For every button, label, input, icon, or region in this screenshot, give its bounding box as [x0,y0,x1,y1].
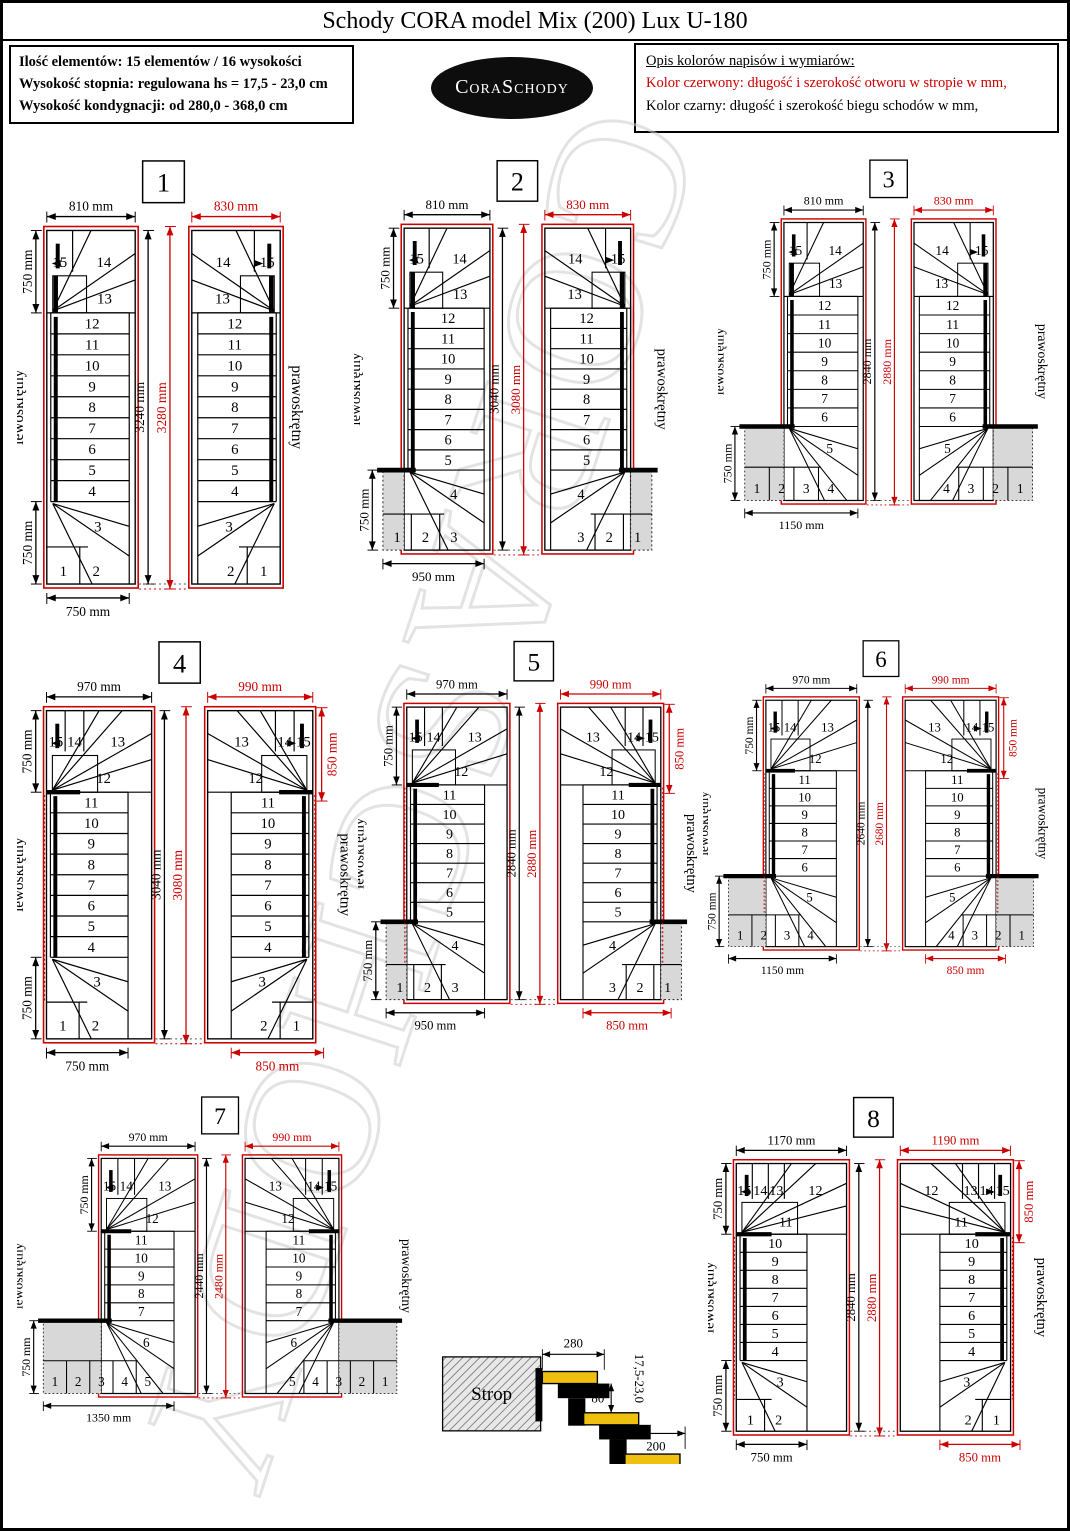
page-title: Schody CORA model Mix (200) Lux U-180 [3,3,1067,41]
svg-text:6: 6 [264,898,271,914]
svg-text:3: 3 [968,481,975,496]
svg-text:5: 5 [289,1374,296,1389]
svg-text:8: 8 [614,846,621,862]
svg-text:4: 4 [88,484,96,500]
svg-text:14: 14 [277,734,292,750]
svg-text:14: 14 [828,243,842,258]
svg-text:280: 280 [563,1336,582,1350]
svg-text:850 mm: 850 mm [324,732,339,776]
svg-text:1: 1 [1017,481,1024,496]
svg-text:7: 7 [444,412,451,428]
svg-text:6: 6 [231,442,238,458]
svg-text:12: 12 [940,752,953,766]
svg-text:10: 10 [951,790,964,804]
svg-text:10: 10 [84,816,99,832]
svg-text:13: 13 [452,287,466,303]
svg-text:750 mm: 750 mm [20,520,35,565]
spec-sheet-page: Schody CORA model Mix (200) Lux U-180 Il… [0,0,1070,1531]
svg-text:850 mm: 850 mm [1022,1180,1036,1222]
svg-text:14: 14 [627,729,641,745]
svg-text:750 mm: 750 mm [20,729,35,773]
svg-text:850 mm: 850 mm [255,1058,299,1073]
svg-text:2: 2 [995,928,1001,942]
svg-text:3: 3 [225,519,232,535]
header-row: Ilość elementów: 15 elementów / 16 wysok… [3,41,1067,141]
svg-text:3: 3 [259,974,266,990]
svg-text:2: 2 [965,1412,972,1428]
svg-text:2: 2 [778,481,785,496]
svg-text:7: 7 [583,412,590,428]
stair-diagram-svg-3: 15 14 13 12 11 10 9 8 7 6 1 2 3 4 5 810 … [718,153,1053,540]
svg-text:11: 11 [818,317,831,332]
svg-text:12: 12 [440,311,454,327]
svg-text:8: 8 [772,1272,779,1288]
svg-text:2: 2 [227,564,234,580]
svg-text:11: 11 [946,317,959,332]
svg-text:5: 5 [826,441,833,456]
svg-text:3: 3 [803,481,810,496]
svg-text:10: 10 [798,790,811,804]
svg-text:15: 15 [408,729,422,745]
svg-text:970 mm: 970 mm [792,674,830,686]
svg-text:13: 13 [769,1183,783,1199]
stair-side-view: Strop 280 80 17,5-23,0 200 [434,1258,692,1464]
svg-text:14: 14 [753,1183,767,1199]
svg-text:1150 mm: 1150 mm [779,518,825,532]
svg-text:13: 13 [829,276,843,291]
svg-text:1190 mm: 1190 mm [931,1133,979,1147]
svg-text:1: 1 [393,530,400,546]
svg-text:9: 9 [88,379,95,395]
diagram-rows: 15 14 13 12 11 10 9 8 7 6 5 4 1 2 3 810 … [3,153,1067,1473]
svg-text:2640 mm: 2640 mm [855,801,867,845]
svg-text:prawoskrętny: prawoskrętny [1033,1257,1049,1337]
svg-text:9: 9 [954,808,960,822]
svg-text:6: 6 [954,860,960,874]
svg-text:11: 11 [954,1214,968,1230]
svg-text:1: 1 [993,1412,1000,1428]
svg-text:6: 6 [772,1308,779,1324]
svg-text:2: 2 [93,564,100,580]
svg-text:1: 1 [1019,928,1025,942]
svg-text:15: 15 [52,255,67,271]
svg-text:prawoskrętny: prawoskrętny [336,833,353,916]
svg-text:12: 12 [946,298,959,313]
svg-text:14: 14 [966,720,979,734]
svg-text:810 mm: 810 mm [804,194,844,208]
legend-heading: Opis kolorów napisów i wymiarów: [646,50,1047,72]
svg-text:6: 6 [446,885,453,901]
svg-text:850 mm: 850 mm [1007,719,1019,757]
svg-text:9: 9 [231,379,238,395]
svg-text:14: 14 [216,255,231,271]
svg-text:1: 1 [293,1018,300,1034]
svg-text:14: 14 [784,720,797,734]
svg-text:8: 8 [88,400,95,416]
svg-text:5: 5 [772,1326,779,1342]
svg-text:4: 4 [231,484,239,500]
svg-text:1: 1 [382,1374,389,1389]
svg-text:13: 13 [269,1178,283,1193]
svg-text:12: 12 [808,1183,822,1199]
logo-part1: Cora [455,76,502,98]
svg-text:12: 12 [96,771,111,787]
svg-text:12: 12 [924,1183,938,1199]
svg-text:11: 11 [951,773,963,787]
svg-text:2480 mm: 2480 mm [211,1253,225,1299]
info-box: Ilość elementów: 15 elementów / 16 wysok… [9,45,354,124]
svg-text:9: 9 [801,808,807,822]
svg-text:8: 8 [231,400,238,416]
stair-diagram-svg-2: 15 14 13 12 11 10 9 8 7 6 5 1 2 3 4 810 … [354,153,674,593]
svg-text:970 mm: 970 mm [77,679,121,694]
svg-text:1350 mm: 1350 mm [86,1410,132,1424]
stair-diagram-svg-1: 15 14 13 12 11 10 9 8 7 6 5 4 1 2 3 810 … [17,153,309,628]
svg-text:2: 2 [92,1018,99,1034]
svg-text:8: 8 [583,392,590,408]
svg-text:14: 14 [96,255,111,271]
svg-text:14: 14 [567,251,581,267]
svg-text:970 mm: 970 mm [129,1130,169,1144]
svg-text:8: 8 [821,373,828,388]
svg-text:9: 9 [772,1254,779,1270]
diagram-row-3: 15 14 13 12 11 10 9 8 7 1 2 3 4 5 6 970 … [3,1090,1067,1473]
svg-text:prawoskrętny: prawoskrętny [288,365,305,449]
svg-text:3: 3 [777,1374,784,1390]
svg-text:80: 80 [591,1391,604,1405]
svg-text:10: 10 [442,807,456,823]
svg-text:8: 8 [138,1286,145,1301]
svg-text:4: 4 [807,928,814,942]
svg-text:1: 1 [747,1412,754,1428]
svg-text:1: 1 [737,928,743,942]
svg-text:11: 11 [611,787,625,803]
svg-text:750 mm: 750 mm [711,1178,725,1220]
svg-text:10: 10 [946,335,960,350]
diagram-row-2: 15 14 13 12 11 10 9 8 7 6 5 4 1 2 3 970 … [3,634,1067,1082]
svg-text:990 mm: 990 mm [238,679,282,694]
svg-text:10: 10 [965,1236,979,1252]
svg-text:8: 8 [954,825,960,839]
svg-text:13: 13 [928,720,941,734]
svg-text:8: 8 [968,1272,975,1288]
svg-text:2: 2 [260,1018,267,1034]
stair-pair-2: 15 14 13 12 11 10 9 8 7 6 5 1 2 3 4 810 … [354,153,674,593]
svg-text:12: 12 [454,764,468,780]
svg-text:3280 mm: 3280 mm [154,382,169,434]
svg-text:830 mm: 830 mm [934,194,974,208]
svg-text:15: 15 [982,720,995,734]
legend-black-line: Kolor czarny: długość i szerokość biegu … [646,95,1047,117]
svg-text:12: 12 [599,764,613,780]
svg-text:5: 5 [806,890,812,904]
svg-text:14: 14 [307,1178,321,1193]
svg-text:850 mm: 850 mm [606,1018,648,1032]
diagram-row-1: 15 14 13 12 11 10 9 8 7 6 5 4 1 2 3 810 … [3,153,1067,628]
stair-diagram-svg-4: 15 14 13 12 11 10 9 8 7 6 5 4 1 2 3 970 … [17,634,357,1082]
svg-text:7: 7 [446,865,453,881]
stair-diagram-svg-8: 15 14 13 12 11 10 9 8 7 6 5 4 1 2 3 1170… [708,1090,1053,1473]
svg-text:9: 9 [446,826,453,842]
svg-text:11: 11 [442,787,456,803]
svg-text:1: 1 [52,1374,59,1389]
stair-pair-1: 15 14 13 12 11 10 9 8 7 6 5 4 1 2 3 810 … [17,153,309,628]
svg-text:12: 12 [85,316,100,332]
svg-text:3080 mm: 3080 mm [170,849,185,900]
svg-text:1: 1 [396,980,403,996]
svg-text:13: 13 [585,729,599,745]
svg-text:lewoskrętny: lewoskrętny [354,352,364,425]
svg-text:10: 10 [85,358,100,374]
svg-text:12: 12 [579,311,593,327]
svg-text:7: 7 [968,1290,975,1306]
svg-text:750 mm: 750 mm [65,1058,109,1073]
svg-text:1150 mm: 1150 mm [761,965,804,977]
svg-text:3: 3 [335,1374,342,1389]
svg-text:2: 2 [992,481,999,496]
svg-text:1: 1 [157,168,170,198]
svg-text:750 mm: 750 mm [760,239,774,279]
svg-text:12: 12 [227,316,242,332]
svg-text:5: 5 [231,463,238,479]
svg-text:3: 3 [94,519,101,535]
stair-diagram-svg-7: 15 14 13 12 11 10 9 8 7 1 2 3 4 5 6 970 … [17,1090,417,1432]
svg-text:10: 10 [135,1250,149,1265]
svg-text:970 mm: 970 mm [436,677,478,691]
svg-text:750 mm: 750 mm [707,892,719,930]
svg-text:7: 7 [296,1304,303,1319]
svg-text:9: 9 [88,836,95,852]
svg-text:lewoskrętny: lewoskrętny [708,1261,718,1333]
svg-text:2: 2 [775,1412,782,1428]
logo-part2: Schody [502,76,569,98]
svg-text:15: 15 [789,243,803,258]
svg-text:15: 15 [103,1178,117,1193]
svg-text:14: 14 [452,251,466,267]
svg-text:9: 9 [444,372,451,388]
svg-text:2440 mm: 2440 mm [192,1252,206,1298]
svg-text:2: 2 [424,980,431,996]
svg-text:11: 11 [579,331,593,347]
svg-text:1: 1 [260,564,267,580]
svg-text:4: 4 [121,1374,128,1389]
svg-text:7: 7 [138,1304,145,1319]
svg-text:750 mm: 750 mm [720,443,734,483]
svg-text:13: 13 [234,734,249,750]
svg-text:2: 2 [75,1374,82,1389]
svg-text:2680 mm: 2680 mm [874,802,886,846]
svg-text:3: 3 [93,974,100,990]
svg-text:4: 4 [264,940,272,956]
svg-text:5: 5 [444,453,451,469]
svg-text:5: 5 [968,1326,975,1342]
legend-red-line: Kolor czerwony: długość i szerokość otwo… [646,72,1047,94]
svg-text:15: 15 [768,720,781,734]
svg-text:13: 13 [97,292,112,308]
svg-text:15: 15 [610,251,624,267]
svg-text:6: 6 [949,410,956,425]
svg-text:15: 15 [409,251,423,267]
svg-text:11: 11 [441,331,455,347]
svg-text:990 mm: 990 mm [589,677,631,691]
svg-text:Strop: Strop [471,1384,512,1405]
svg-text:5: 5 [446,904,453,920]
svg-text:9: 9 [583,372,590,388]
svg-text:prawoskrętny: prawoskrętny [683,814,699,894]
svg-text:1170 mm: 1170 mm [767,1133,815,1147]
svg-text:11: 11 [293,1232,306,1247]
svg-text:7: 7 [614,865,621,881]
info-line-storey-height: Wysokość kondygnacji: od 280,0 - 368,0 c… [19,96,344,118]
svg-text:15: 15 [296,734,311,750]
svg-text:14: 14 [120,1178,134,1193]
svg-text:13: 13 [215,292,230,308]
svg-text:10: 10 [579,352,593,368]
svg-text:8: 8 [296,1286,303,1301]
svg-text:lewoskrętny: lewoskrętny [17,837,27,912]
stair-pair-4: 15 14 13 12 11 10 9 8 7 6 5 4 1 2 3 970 … [17,634,357,1082]
svg-text:15: 15 [644,729,658,745]
svg-text:9: 9 [138,1268,145,1283]
svg-text:7: 7 [231,421,239,437]
svg-text:750 mm: 750 mm [361,939,375,981]
svg-text:4: 4 [948,928,955,942]
svg-text:14: 14 [426,729,440,745]
svg-text:10: 10 [261,816,276,832]
svg-text:11: 11 [779,1214,793,1230]
svg-text:12: 12 [281,1211,294,1226]
svg-text:8: 8 [264,857,271,873]
svg-text:5: 5 [949,890,955,904]
svg-text:15: 15 [324,1178,338,1193]
svg-text:14: 14 [935,243,949,258]
svg-text:6: 6 [290,1335,297,1350]
svg-text:15: 15 [996,1183,1010,1199]
svg-text:4: 4 [88,940,96,956]
svg-text:4: 4 [312,1374,319,1389]
svg-text:3: 3 [451,980,458,996]
svg-text:10: 10 [768,1236,782,1252]
svg-text:5: 5 [583,453,590,469]
svg-text:3: 3 [450,530,457,546]
svg-text:2: 2 [510,168,523,197]
svg-text:6: 6 [968,1308,975,1324]
svg-text:7: 7 [264,878,271,894]
svg-text:3: 3 [883,168,895,194]
svg-text:10: 10 [440,352,454,368]
svg-text:2: 2 [421,530,428,546]
svg-text:6: 6 [88,898,95,914]
svg-text:950 mm: 950 mm [414,1018,456,1032]
svg-text:8: 8 [801,825,807,839]
stair-pair-6: 15 14 13 12 11 10 9 8 7 6 1 2 3 4 5 970 … [703,634,1053,984]
svg-text:12: 12 [818,298,831,313]
svg-text:10: 10 [227,358,242,374]
svg-text:9: 9 [968,1254,975,1270]
svg-text:750 mm: 750 mm [751,1450,793,1464]
svg-text:14: 14 [979,1183,993,1199]
svg-text:prawoskrętny: prawoskrętny [653,349,669,431]
svg-text:830 mm: 830 mm [214,199,259,214]
svg-text:2: 2 [636,980,643,996]
svg-text:3: 3 [963,1374,970,1390]
svg-text:6: 6 [614,885,621,901]
svg-text:11: 11 [135,1232,148,1247]
svg-text:13: 13 [963,1183,977,1199]
svg-text:7: 7 [772,1290,779,1306]
svg-text:4: 4 [577,487,584,503]
info-line-step-height: Wysokość stopnia: regulowana hs = 17,5 -… [19,74,344,96]
svg-text:7: 7 [821,391,828,406]
svg-text:6: 6 [583,433,590,449]
svg-text:950 mm: 950 mm [412,569,455,584]
svg-text:2840 mm: 2840 mm [860,338,874,384]
stair-diagram-svg-6: 15 14 13 12 11 10 9 8 7 6 1 2 3 4 5 970 … [703,634,1053,984]
svg-text:4: 4 [609,938,616,954]
svg-text:7: 7 [88,421,96,437]
svg-text:9: 9 [821,354,828,369]
svg-text:2840 mm: 2840 mm [504,829,518,877]
svg-text:4: 4 [827,481,834,496]
svg-text:810 mm: 810 mm [425,197,468,212]
svg-text:3: 3 [972,928,978,942]
svg-text:13: 13 [110,734,125,750]
svg-text:750 mm: 750 mm [711,1375,725,1417]
stair-pair-7: 15 14 13 12 11 10 9 8 7 1 2 3 4 5 6 970 … [17,1090,417,1432]
svg-text:850 mm: 850 mm [959,1450,1001,1464]
svg-text:10: 10 [292,1250,306,1265]
svg-text:6: 6 [444,433,451,449]
svg-text:750 mm: 750 mm [19,1337,33,1377]
svg-text:5: 5 [527,648,540,676]
svg-text:11: 11 [228,337,242,353]
svg-text:13: 13 [467,729,481,745]
svg-text:2840 mm: 2840 mm [844,1273,858,1322]
svg-text:3240 mm: 3240 mm [132,381,147,433]
svg-text:9: 9 [614,826,621,842]
svg-text:13: 13 [821,720,834,734]
svg-text:2: 2 [760,928,766,942]
svg-text:prawoskrętny: prawoskrętny [399,1239,414,1313]
svg-text:5: 5 [614,904,621,920]
svg-text:4: 4 [772,1344,779,1360]
svg-text:2: 2 [359,1374,366,1389]
svg-text:6: 6 [875,647,886,672]
svg-text:6: 6 [143,1335,150,1350]
svg-text:750 mm: 750 mm [20,975,35,1019]
svg-text:9: 9 [264,836,271,852]
svg-text:200: 200 [646,1439,665,1453]
svg-text:15: 15 [975,243,989,258]
svg-text:6: 6 [801,860,807,874]
svg-text:750 mm: 750 mm [66,604,111,619]
svg-text:1: 1 [754,481,761,496]
svg-text:5: 5 [88,463,95,479]
svg-text:lewoskrętny: lewoskrętny [17,369,27,444]
svg-text:750 mm: 750 mm [20,249,35,294]
stair-pair-5: 15 14 13 12 11 10 9 8 7 6 5 1 2 3 4 970 … [358,634,703,1041]
svg-text:prawoskrętny: prawoskrętny [1035,324,1050,399]
svg-text:4: 4 [968,1344,975,1360]
svg-text:850 mm: 850 mm [672,728,686,770]
svg-text:7: 7 [88,878,95,894]
svg-text:1: 1 [664,980,671,996]
svg-text:810 mm: 810 mm [69,199,114,214]
svg-text:12: 12 [248,771,263,787]
stair-pair-8: 15 14 13 12 11 10 9 8 7 6 5 4 1 2 3 1170… [708,1090,1053,1473]
svg-text:7: 7 [214,1104,226,1130]
svg-text:11: 11 [261,795,275,811]
